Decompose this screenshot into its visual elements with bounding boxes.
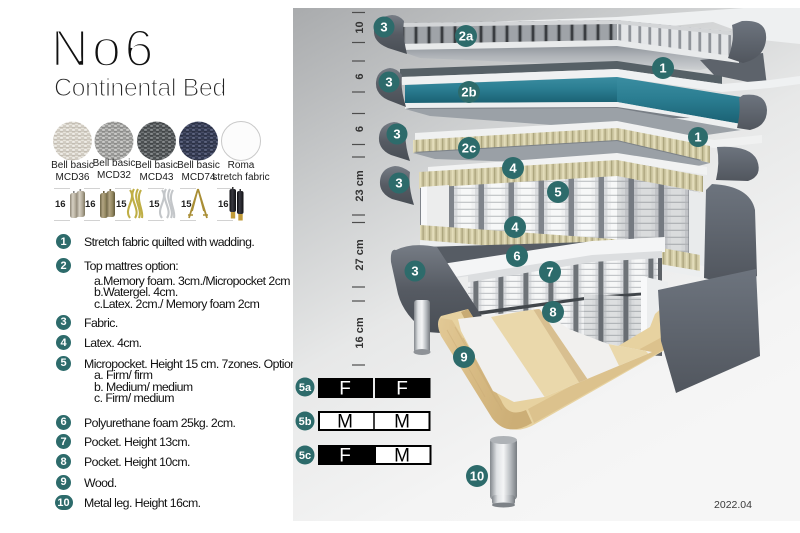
- svg-text:16 cm: 16 cm: [354, 317, 366, 348]
- svg-text:2b: 2b: [461, 85, 476, 100]
- svg-text:5: 5: [554, 185, 561, 200]
- svg-text:10: 10: [354, 21, 366, 33]
- svg-text:8: 8: [549, 305, 556, 320]
- svg-text:4: 4: [509, 161, 517, 176]
- svg-text:10: 10: [470, 469, 484, 484]
- svg-text:7: 7: [546, 265, 553, 280]
- svg-text:M: M: [394, 446, 410, 467]
- svg-text:3: 3: [411, 264, 418, 279]
- svg-text:5a: 5a: [299, 382, 312, 394]
- svg-text:2a: 2a: [459, 29, 474, 44]
- svg-text:5b: 5b: [299, 416, 312, 428]
- svg-text:M: M: [394, 412, 410, 433]
- svg-text:3: 3: [395, 176, 402, 191]
- svg-text:6: 6: [354, 126, 366, 132]
- svg-text:F: F: [396, 379, 408, 400]
- svg-text:F: F: [339, 379, 351, 400]
- svg-text:3: 3: [385, 75, 392, 90]
- svg-text:4: 4: [511, 220, 519, 235]
- svg-text:3: 3: [380, 20, 387, 35]
- svg-text:5c: 5c: [299, 450, 311, 462]
- svg-text:9: 9: [460, 350, 467, 365]
- svg-text:F: F: [339, 446, 351, 467]
- svg-text:2022.04: 2022.04: [714, 499, 752, 511]
- svg-text:1: 1: [694, 130, 701, 145]
- svg-text:2c: 2c: [462, 141, 476, 156]
- svg-text:6: 6: [354, 73, 366, 79]
- svg-text:27 cm: 27 cm: [354, 239, 366, 270]
- svg-text:23 cm: 23 cm: [354, 170, 366, 201]
- svg-text:1: 1: [659, 61, 666, 76]
- svg-text:M: M: [337, 412, 353, 433]
- svg-text:6: 6: [513, 249, 520, 264]
- svg-text:3: 3: [393, 127, 400, 142]
